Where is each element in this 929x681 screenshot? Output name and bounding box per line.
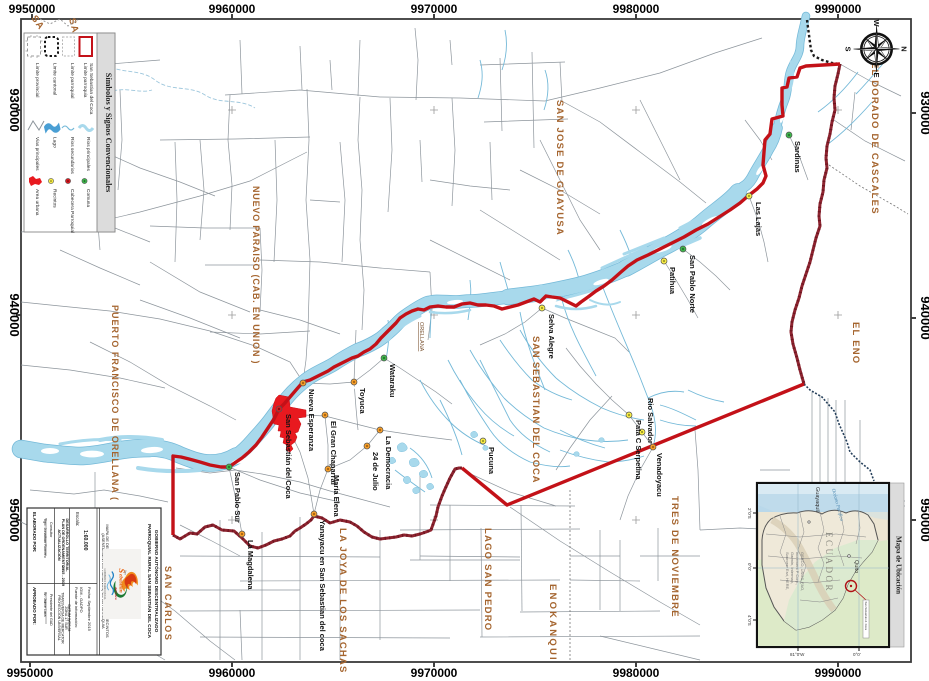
svg-text:EL DORADO DE CASCALES: EL DORADO DE CASCALES: [869, 62, 880, 215]
svg-text:Toyuca: Toyuca: [358, 388, 367, 415]
svg-text:Pucuna: Pucuna: [487, 447, 496, 475]
svg-text:Area urbana: Area urbana: [34, 189, 40, 216]
svg-text:Lago: Lago: [52, 137, 58, 148]
svg-text:PUERTO FRANCISCO DE ORELLANA (: PUERTO FRANCISCO DE ORELLANA (: [110, 305, 120, 501]
svg-text:increment P Corp.,: increment P Corp.,: [795, 552, 800, 585]
svg-text:9970000: 9970000: [411, 666, 458, 680]
svg-text:La Democracia: La Democracia: [384, 436, 393, 490]
svg-text:Limite cantonal: Limite cantonal: [52, 63, 58, 95]
svg-text:NUEVO PARAISO (CAB. EN UNION ): NUEVO PARAISO (CAB. EN UNION ): [251, 186, 261, 364]
svg-text:Limite parroquial: Limite parroquial: [69, 63, 75, 98]
svg-text:9990000: 9990000: [815, 2, 862, 16]
svg-text:W: W: [872, 19, 881, 27]
svg-text:GEBCO, USGS, FAO,: GEBCO, USGS, FAO,: [800, 552, 805, 591]
svg-text:Comuna: Comuna: [85, 189, 91, 207]
svg-text:N: N: [900, 46, 909, 51]
svg-text:24 de Julio: 24 de Julio: [371, 452, 380, 491]
svg-text:2015 - 2019: 2015 - 2019: [61, 566, 65, 586]
svg-text:San Sebastián d. Coca: San Sebastián d. Coca: [864, 602, 868, 631]
svg-text:del Coca: del Coca: [114, 587, 118, 600]
svg-text:Sources: Esri, HERE,: Sources: Esri, HERE,: [785, 552, 790, 590]
svg-text:Rios secundarios: Rios secundarios: [69, 137, 75, 174]
svg-text:Sr. Jaime Lara: Sr. Jaime Lara: [43, 592, 47, 617]
svg-text:DATUM WGS 84: DATUM WGS 84: [67, 604, 71, 631]
svg-text:Símbolos y Signos Convencional: Símbolos y Signos Convencionales: [104, 73, 113, 192]
svg-text:Cabecera Parroquial: Cabecera Parroquial: [69, 189, 75, 233]
svg-text:0°0': 0°0': [853, 652, 861, 657]
svg-text:PLAN DE ORDENAMIENTO Y: PLAN DE ORDENAMIENTO Y: [61, 519, 65, 572]
svg-text:Selva Alegre: Selva Alegre: [547, 314, 556, 359]
svg-text:Consultor: Consultor: [49, 522, 53, 538]
svg-text:SAN JOSE DE GUAYUSA: SAN JOSE DE GUAYUSA: [554, 100, 565, 236]
svg-text:Vias principales: Vias principales: [34, 137, 40, 171]
svg-text:San: San: [123, 570, 127, 575]
svg-text:Sardinas: Sardinas: [793, 141, 802, 173]
svg-text:Nueva Esperanza: Nueva Esperanza: [307, 389, 316, 452]
svg-text:950000: 950000: [918, 498, 929, 541]
svg-text:TRES DE NOVIEMBRE: TRES DE NOVIEMBRE: [669, 496, 680, 618]
svg-text:9990000: 9990000: [815, 666, 862, 680]
svg-text:GOBIERNO PARROQUIAL: GOBIERNO PARROQUIAL: [103, 568, 106, 599]
svg-text:2°0'S: 2°0'S: [747, 508, 752, 519]
svg-text:Garmin, Intermap,: Garmin, Intermap,: [790, 552, 795, 584]
svg-text:San Sebastián del Coca: San Sebastián del Coca: [284, 414, 293, 499]
svg-text:La Magdalena: La Magdalena: [246, 540, 255, 590]
svg-text:Recintos: Recintos: [52, 189, 58, 208]
svg-text:9970000: 9970000: [411, 2, 458, 16]
svg-text:TRANSVERSA DE MERCATOR: TRANSVERSA DE MERCATOR: [61, 592, 65, 644]
svg-text:9960000: 9960000: [209, 2, 256, 16]
svg-text:Guayaquil: Guayaquil: [814, 487, 820, 512]
svg-text:APROBADO POR:: APROBADO POR:: [32, 587, 37, 625]
svg-text:Escala:: Escala:: [75, 512, 80, 526]
svg-text:Patihua: Patihua: [668, 267, 677, 295]
svg-text:Limite provincial: Limite provincial: [34, 63, 40, 97]
svg-text:LA JOYA DE LOS SACHAS: LA JOYA DE LOS SACHAS: [337, 528, 348, 674]
svg-text:ELABORADO POR:: ELABORADO POR:: [32, 512, 37, 553]
svg-text:ORELLANA: ORELLANA: [418, 322, 424, 352]
svg-text:Yanayacu en San Sebastian del: Yanayacu en San Sebastian del coca: [318, 520, 327, 652]
svg-text:EL ENO: EL ENO: [850, 322, 861, 364]
svg-text:Las Lajas: Las Lajas: [754, 202, 763, 236]
svg-text:Mapa de Ubicación: Mapa de Ubicación: [895, 536, 903, 594]
svg-text:S: S: [844, 46, 853, 51]
svg-text:San Pablo Sur: San Pablo Sur: [233, 472, 242, 523]
svg-text:930000: 930000: [918, 91, 929, 134]
svg-text:Limite parroquia: Limite parroquia: [82, 63, 88, 98]
svg-text:Quito: Quito: [853, 560, 859, 573]
svg-text:Rios principales: Rios principales: [85, 137, 91, 171]
svg-text:Rio Salvador: Rio Salvador: [646, 398, 655, 444]
svg-text:9980000: 9980000: [613, 2, 660, 16]
svg-text:9950000: 9950000: [7, 666, 54, 680]
svg-text:4°0'S: 4°0'S: [747, 615, 752, 626]
svg-text:Wataraku: Wataraku: [388, 364, 397, 398]
svg-text:María Elena: María Elena: [332, 475, 341, 518]
svg-text:9960000: 9960000: [209, 666, 256, 680]
svg-text:Venadoyacu: Venadoyacu: [655, 453, 664, 497]
svg-text:GOBIERNO AUTÓNOMO DESCENTRALIZ: GOBIERNO AUTÓNOMO DESCENTRALIZADO: [154, 530, 161, 633]
svg-text:9950000: 9950000: [9, 2, 56, 16]
svg-text:Tlgo. Jonathan Romero: Tlgo. Jonathan Romero: [43, 518, 47, 558]
svg-text:Fuente de información:: Fuente de información:: [74, 587, 79, 628]
svg-text:PARROQUIAL RURAL SAN SEBASTIÁN: PARROQUIAL RURAL SAN SEBASTIÁN DEL COCA: [147, 524, 153, 639]
svg-text:SAN CARLOS: SAN CARLOS: [163, 566, 173, 642]
svg-text:E: E: [872, 72, 881, 77]
svg-text:Pata C Serpetina: Pata C Serpetina: [634, 420, 643, 480]
svg-text:0°0': 0°0': [747, 563, 752, 571]
svg-text:81°0'W: 81°0'W: [790, 652, 805, 657]
svg-text:LAGO SAN PEDRO: LAGO SAN PEDRO: [482, 528, 493, 631]
svg-text:IGM - GADPO: IGM - GADPO: [79, 587, 84, 613]
svg-text:940000: 940000: [918, 296, 929, 339]
svg-text:San Pablo Norte: San Pablo Norte: [688, 255, 697, 313]
svg-text:Presidente del GAD: Presidente del GAD: [49, 594, 53, 626]
svg-text:Fecha: Septiembre 2015: Fecha: Septiembre 2015: [87, 587, 92, 632]
svg-text:DESARROLLO TERRITORIAL: DESARROLLO TERRITORIAL: [65, 518, 69, 572]
svg-text:ENOKANQUI: ENOKANQUI: [547, 584, 558, 662]
svg-text:San Sebastian del Coca: San Sebastian del Coca: [88, 63, 94, 115]
svg-text:ECUADOR: ECUADOR: [824, 532, 834, 593]
svg-text:9980000: 9980000: [613, 666, 660, 680]
svg-text:1:60.000: 1:60.000: [82, 530, 88, 551]
svg-text:SAN SEBASTIAN DEL COCA: SAN SEBASTIAN DEL COCA: [530, 336, 541, 483]
